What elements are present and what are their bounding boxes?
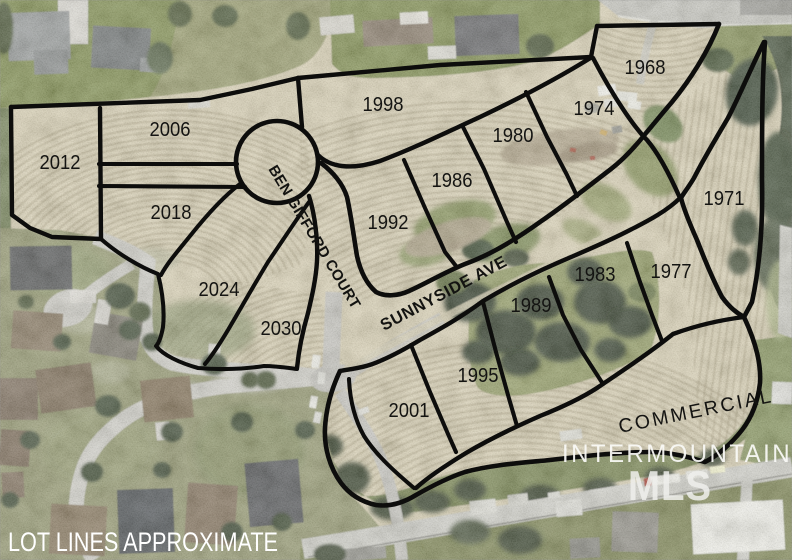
svg-text:MLS: MLS <box>628 462 712 509</box>
svg-text:1971: 1971 <box>704 187 745 210</box>
svg-text:2006: 2006 <box>150 118 191 141</box>
svg-text:1992: 1992 <box>368 211 409 234</box>
svg-text:2012: 2012 <box>40 151 81 174</box>
svg-text:1974: 1974 <box>574 97 615 120</box>
svg-text:1998: 1998 <box>363 93 404 116</box>
svg-text:1968: 1968 <box>625 56 666 79</box>
svg-text:1983: 1983 <box>575 263 616 286</box>
svg-text:2001: 2001 <box>389 399 430 422</box>
svg-text:1986: 1986 <box>432 169 473 192</box>
svg-text:2024: 2024 <box>199 278 240 301</box>
svg-text:1995: 1995 <box>458 364 499 387</box>
svg-text:1977: 1977 <box>651 260 692 283</box>
svg-text:2030: 2030 <box>261 317 302 340</box>
svg-text:1980: 1980 <box>493 124 534 147</box>
svg-text:1989: 1989 <box>511 294 552 317</box>
svg-text:2018: 2018 <box>151 201 192 224</box>
svg-text:LOT LINES APPROXIMATE: LOT LINES APPROXIMATE <box>8 527 278 557</box>
